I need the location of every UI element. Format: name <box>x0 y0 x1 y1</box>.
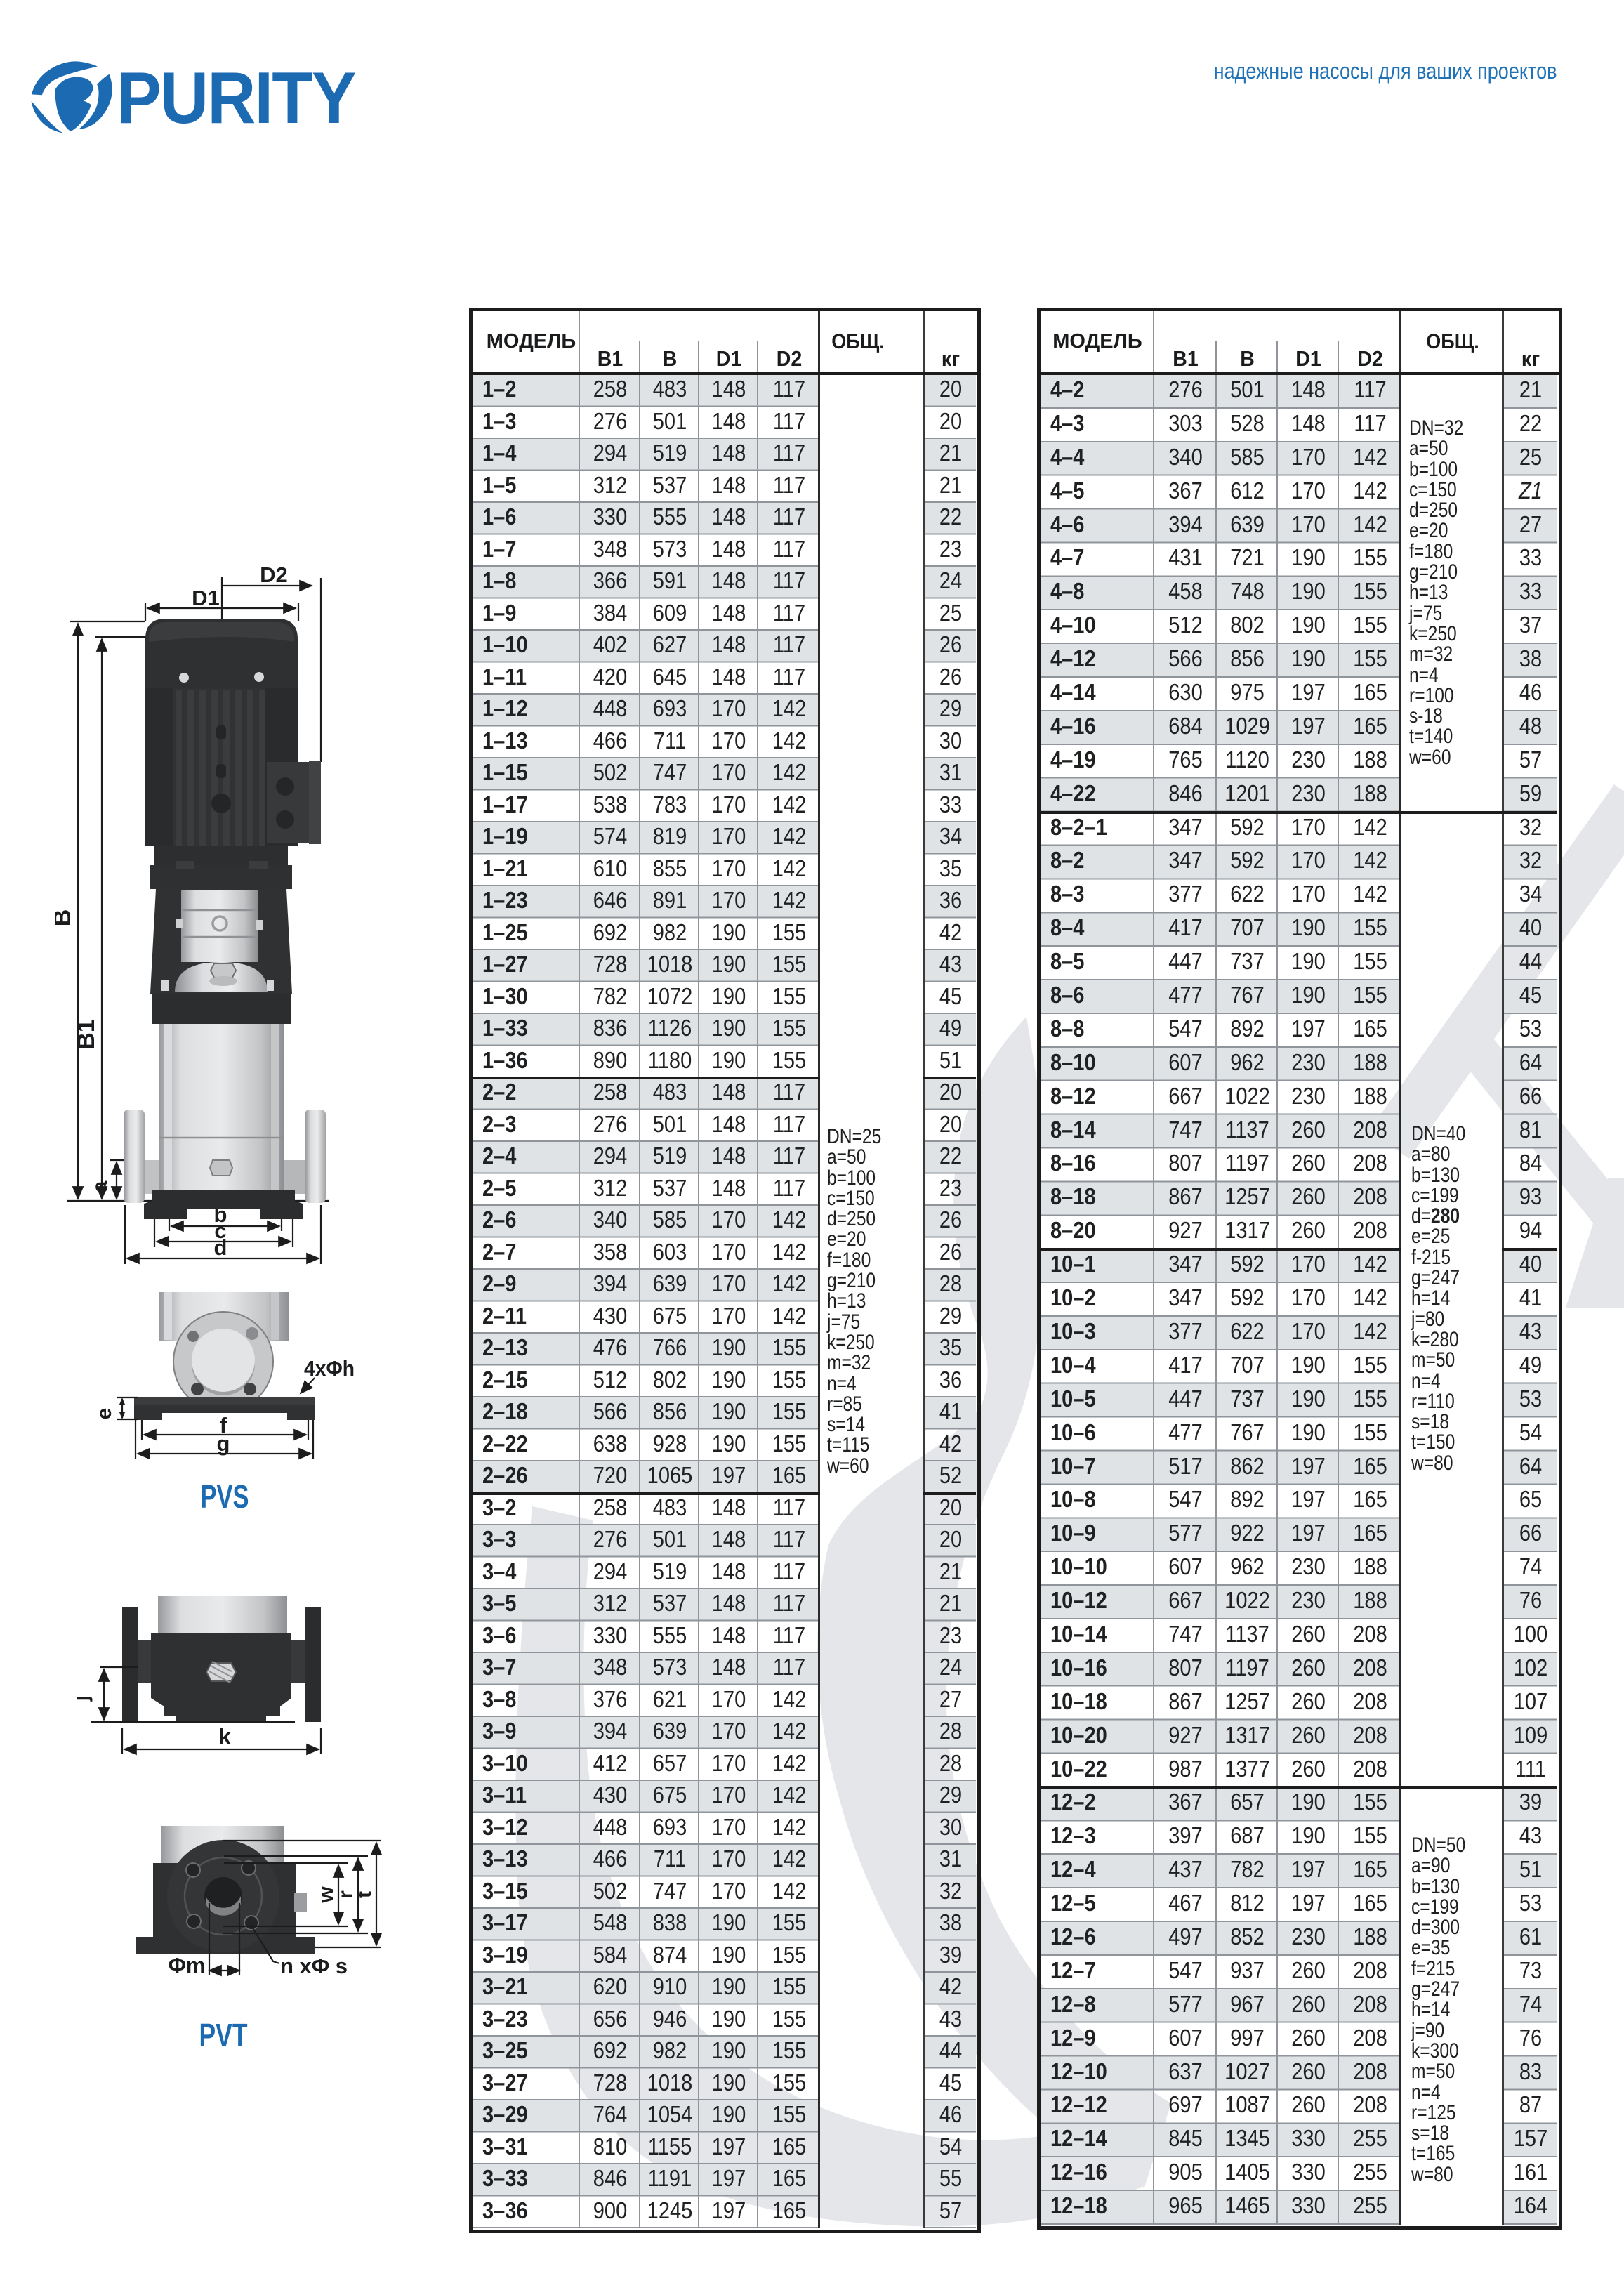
svg-text:e: e <box>98 1408 116 1420</box>
svg-text:B: B <box>55 909 76 927</box>
svg-text:4xΦh: 4xΦh <box>304 1356 355 1381</box>
svg-text:a: a <box>88 1180 112 1192</box>
svg-text:PVT: PVT <box>199 2017 248 2051</box>
svg-text:B1: B1 <box>73 1019 100 1049</box>
svg-text:D1: D1 <box>192 586 220 610</box>
svg-text:PVS: PVS <box>201 1478 249 1515</box>
svg-text:k: k <box>218 1724 231 1749</box>
svg-text:t: t <box>352 1891 376 1898</box>
svg-text:D2: D2 <box>260 563 288 587</box>
svg-text:Φm: Φm <box>168 1953 205 1978</box>
svg-text:j: j <box>77 1695 93 1702</box>
svg-text:n xΦ s: n xΦ s <box>280 1954 348 1978</box>
svg-text:d: d <box>214 1235 227 1260</box>
svg-text:g: g <box>217 1431 230 1456</box>
